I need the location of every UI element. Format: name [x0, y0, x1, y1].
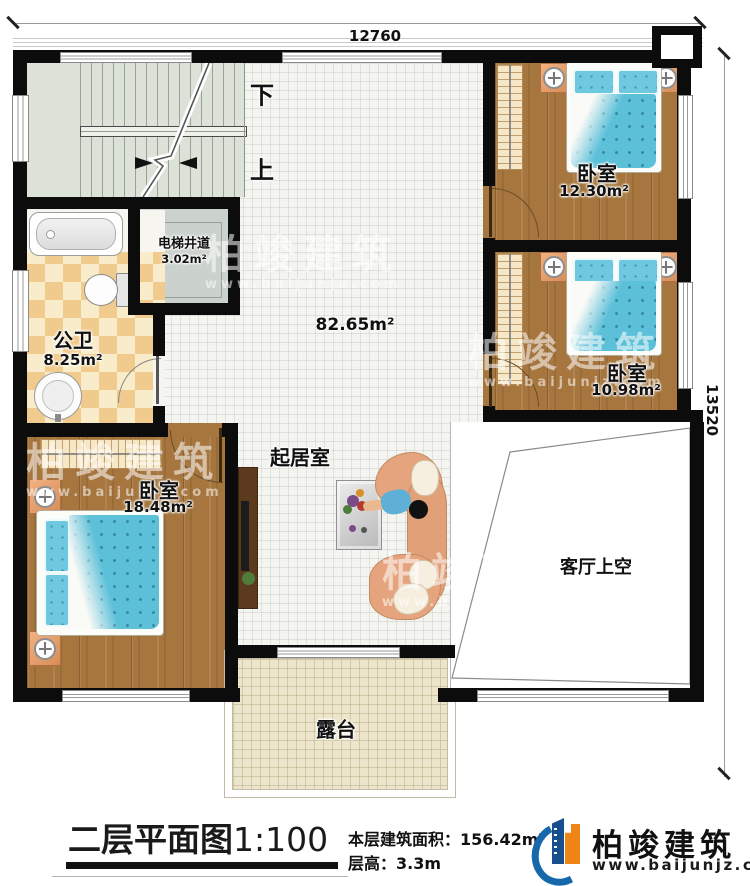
window-bedroom-left	[62, 690, 190, 702]
floor-height-row: 层高：3.3m	[348, 850, 441, 874]
window-living-top	[282, 52, 442, 63]
title-underline	[66, 862, 338, 869]
terrace-label: 露台	[316, 714, 356, 743]
sink-tap	[55, 414, 61, 422]
wall-elevator-left	[128, 197, 140, 315]
bedroom-left-area: 18.48m²	[123, 498, 193, 516]
living-label: 起居室	[270, 442, 330, 471]
door-leaf	[489, 186, 492, 237]
lamp-icon	[543, 67, 565, 89]
stair-down-label: 下	[250, 76, 274, 111]
plan-title: 二层平面图1:100	[68, 813, 328, 861]
door-leaf	[156, 356, 159, 404]
wall-elevator-top	[128, 197, 240, 209]
bathroom-area: 8.25m²	[43, 351, 102, 369]
person-head	[409, 500, 428, 519]
window-stair	[60, 52, 192, 63]
toilet	[84, 272, 130, 306]
pillow	[573, 69, 615, 95]
wardrobe-bedroom-left	[40, 439, 162, 469]
title-thin-line	[52, 876, 348, 877]
dim-line-top	[13, 23, 703, 24]
pillow	[44, 573, 70, 627]
wall-bedroom-left-right	[225, 423, 238, 688]
pillow	[44, 519, 70, 573]
elevator-label: 电梯井道	[158, 233, 210, 252]
wall-elevator-bottom	[128, 303, 240, 315]
living-area: 82.65m²	[316, 315, 395, 335]
bed-bedroom-left	[36, 510, 164, 636]
plant-icon	[242, 572, 255, 585]
lamp-icon	[34, 638, 56, 660]
wall-stair-bottom	[27, 197, 128, 209]
brand-logo-icon	[534, 814, 590, 876]
toilet-bowl	[84, 274, 118, 306]
dim-width-label: 12760	[349, 27, 401, 45]
window-left-bathroom	[12, 270, 29, 352]
sofa	[363, 452, 447, 618]
floor-plan-canvas: 柏竣建筑 www.baijunjz.com 柏竣建筑 www.baijunjz.…	[0, 0, 750, 886]
sheet-fold	[69, 515, 159, 629]
dim-line-right	[724, 55, 725, 777]
pillow	[617, 69, 659, 95]
plan-title-text: 二层平面图	[68, 820, 233, 859]
tv-cabinet	[238, 467, 258, 609]
window-void-bottom	[477, 690, 669, 702]
sliding-door-terrace	[277, 647, 400, 658]
sink	[34, 372, 82, 420]
stair-break-line	[27, 63, 245, 197]
bedroom-mid-area: 10.98m²	[591, 381, 661, 399]
blanket	[69, 515, 159, 629]
door-leaf	[219, 428, 222, 482]
nightstand	[540, 252, 568, 282]
bed-bedroom-top	[566, 61, 662, 173]
door-leaf	[489, 356, 492, 407]
plan-scale: 1:100	[233, 820, 328, 859]
window-bedroom-top	[678, 95, 693, 199]
brand-url: www.baijunjz.com	[592, 856, 750, 874]
blanket	[571, 281, 656, 351]
lamp-icon	[34, 486, 56, 508]
bedroom-top-area: 12.30m²	[559, 182, 629, 200]
logo-windows	[554, 828, 557, 858]
floor-height-label: 层高：	[348, 854, 396, 873]
sink-basin	[42, 380, 74, 412]
window-left-stair	[12, 95, 29, 162]
bathtub-drain	[46, 230, 55, 239]
nightstand	[29, 631, 61, 666]
flower-icon	[343, 505, 352, 514]
window-bedroom-mid	[678, 282, 693, 389]
sofa-cushion	[411, 460, 439, 496]
wardrobe-bedroom-top	[497, 64, 523, 170]
nightstand	[29, 479, 61, 514]
bed-bedroom-mid	[566, 250, 662, 356]
void-label: 客厅上空	[560, 553, 632, 579]
nightstand	[540, 63, 568, 93]
stair-up-label: 上	[250, 151, 274, 186]
floor-area-label: 本层建筑面积：	[348, 830, 460, 849]
wall-bedroom-divider	[483, 240, 690, 252]
bathtub	[29, 212, 123, 256]
tv-icon	[241, 501, 249, 571]
elevator-area: 3.02m²	[161, 252, 206, 266]
bathroom-label: 公卫	[53, 325, 93, 354]
corner-column-inner	[661, 35, 693, 59]
decor-dot	[349, 525, 356, 532]
wall-right-void	[690, 422, 704, 702]
floor-area-row: 本层建筑面积：156.42m²	[348, 826, 545, 850]
lamp-icon	[543, 256, 565, 278]
wall-elevator-right	[228, 197, 240, 315]
dim-height-label: 13520	[703, 384, 721, 436]
sheet-fold	[571, 281, 656, 351]
floor-height-value: 3.3m	[396, 854, 441, 873]
wall-bedroom-mid-bottom	[483, 410, 703, 422]
